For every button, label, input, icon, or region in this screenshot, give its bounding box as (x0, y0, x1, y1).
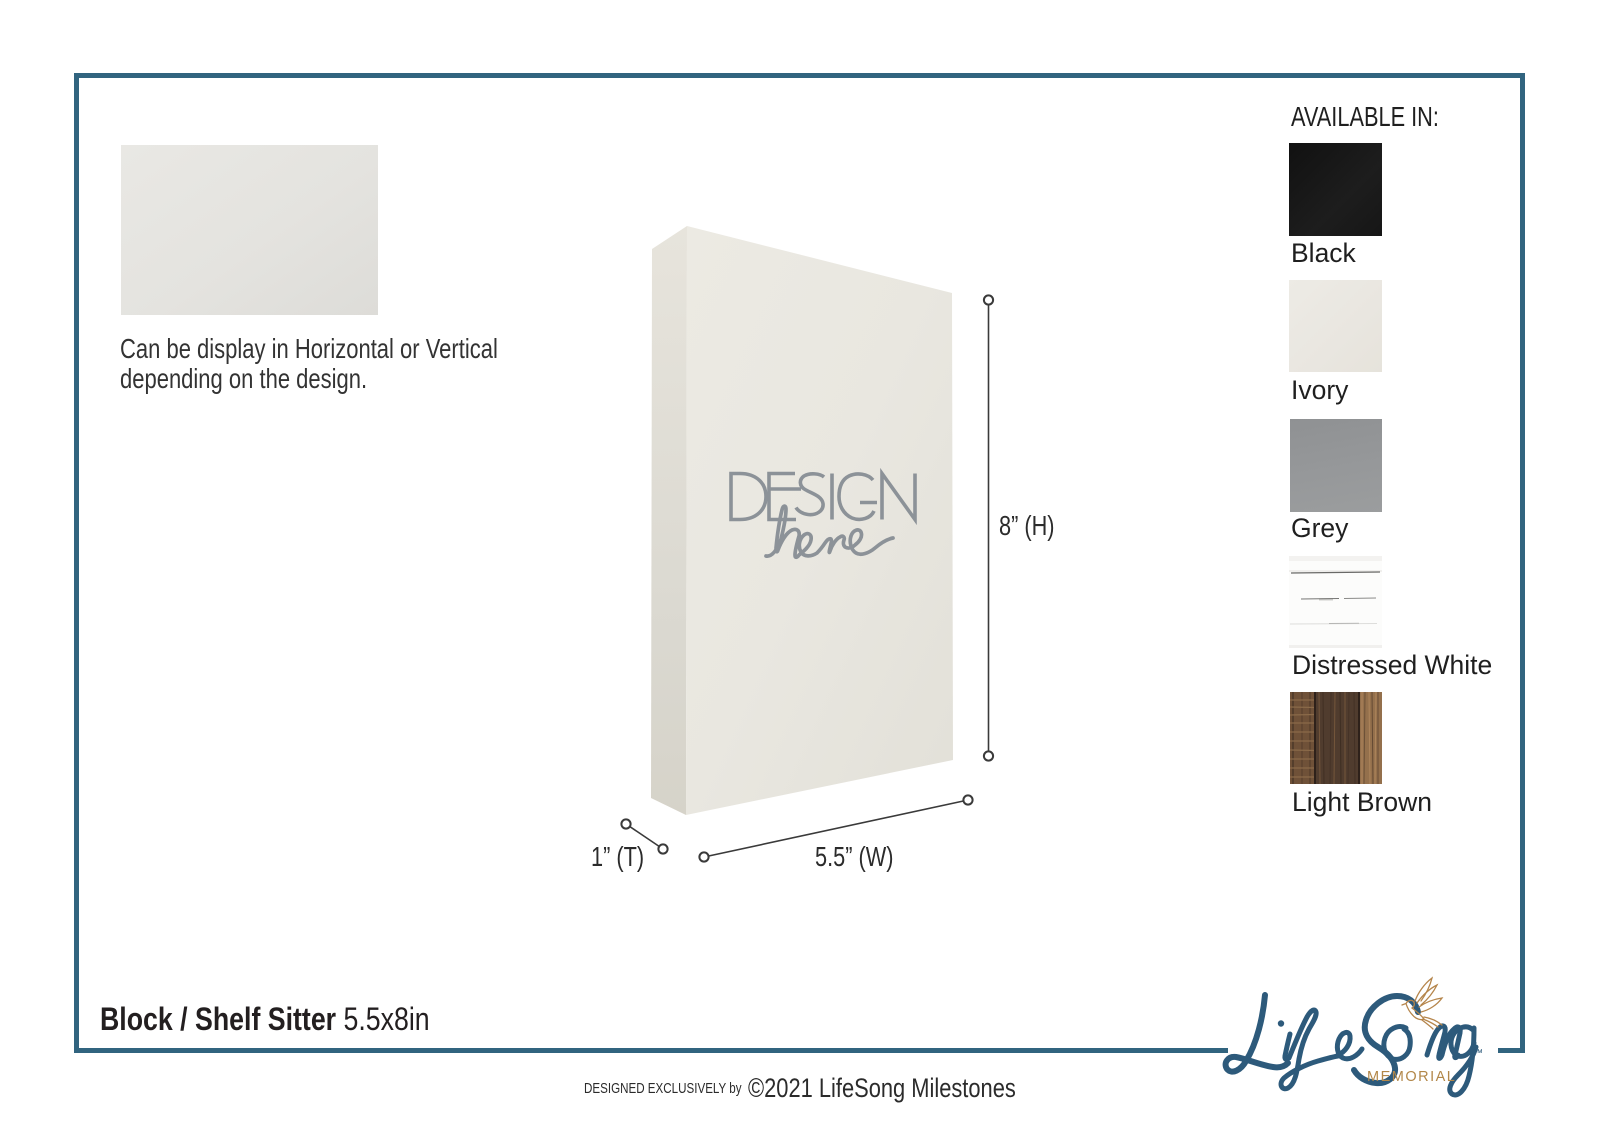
svg-text:™: ™ (1473, 1048, 1483, 1059)
svg-text:MEMORIAL: MEMORIAL (1367, 1069, 1456, 1085)
